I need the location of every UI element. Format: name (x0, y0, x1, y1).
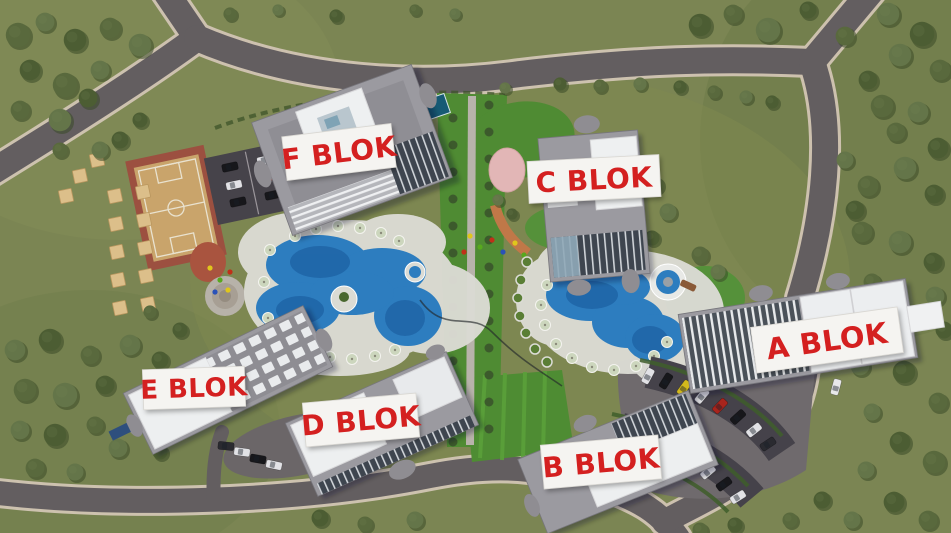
tree-highlight (331, 11, 337, 17)
tree-highlight (861, 73, 870, 82)
promenade-tree (485, 128, 494, 137)
tree-highlight (694, 524, 701, 531)
umbrella-pole (394, 349, 396, 351)
tree-highlight (635, 79, 641, 85)
tree-highlight (47, 427, 58, 438)
tree-highlight (913, 25, 925, 37)
umbrella-pole (666, 341, 668, 343)
play-equipment (227, 269, 232, 274)
umbrella-pole (351, 358, 353, 360)
tree-highlight (926, 454, 937, 465)
tree-highlight (874, 98, 885, 109)
cabana (109, 244, 124, 259)
tree-highlight (926, 255, 935, 264)
flowerbed (542, 357, 552, 367)
promenade-tree (449, 249, 458, 258)
promenade-tree (449, 114, 458, 123)
tree-highlight (741, 92, 747, 98)
tree-highlight (13, 423, 22, 432)
play-equipment (477, 244, 482, 249)
tree-highlight (9, 26, 21, 38)
tree-highlight (274, 6, 279, 11)
umbrella-pole (374, 355, 376, 357)
tree-highlight (928, 289, 937, 298)
cabana (135, 184, 150, 199)
tree-highlight (22, 62, 32, 72)
umbrella-pole (380, 232, 382, 234)
tree-highlight (662, 206, 670, 214)
tree-highlight (712, 266, 719, 273)
car-windshield (222, 443, 228, 449)
tree-highlight (94, 144, 102, 152)
tree-highlight (675, 82, 681, 88)
pink-plaza (489, 148, 525, 192)
tree-highlight (838, 29, 847, 38)
umbrella-pole (591, 366, 593, 368)
tree-highlight (54, 144, 61, 151)
umbrella-pole (546, 284, 548, 286)
flowerbed (516, 275, 526, 285)
umbrella-pole (359, 227, 361, 229)
play-equipment (467, 233, 472, 238)
tree-highlight (816, 494, 824, 502)
tree-highlight (501, 84, 506, 89)
umbrella-pole (635, 365, 637, 367)
tree-highlight (889, 125, 898, 134)
tree-highlight (81, 91, 90, 100)
play-equipment (212, 289, 217, 294)
play-equipment (512, 240, 517, 245)
tree-highlight (848, 203, 857, 212)
tree-highlight (927, 187, 936, 196)
flowerbed (513, 293, 523, 303)
tree-highlight (411, 6, 416, 11)
promenade-tree (485, 344, 494, 353)
tree-highlight (860, 464, 868, 472)
tree-highlight (111, 441, 120, 450)
tree-highlight (134, 114, 141, 121)
promenade-tree (449, 222, 458, 231)
promenade-tree (485, 371, 494, 380)
flowerbed (515, 311, 525, 321)
tree-highlight (759, 21, 771, 33)
cabana (108, 216, 123, 231)
umbrella-pole (555, 343, 557, 345)
tree-highlight (69, 466, 77, 474)
tree-highlight (880, 6, 891, 17)
tree-highlight (930, 140, 940, 150)
tree-highlight (42, 332, 53, 343)
tree-highlight (56, 76, 68, 88)
tree-highlight (726, 7, 735, 16)
flowerbed (521, 328, 531, 338)
tree-highlight (555, 79, 561, 85)
tree-highlight (886, 494, 896, 504)
tree-highlight (784, 514, 791, 521)
tree-highlight (932, 62, 942, 72)
umbrella-pole (263, 281, 265, 283)
tree-highlight (67, 32, 78, 43)
tree-highlight (98, 378, 107, 387)
cabana (112, 300, 127, 315)
block-label-e[interactable]: E BLOK (140, 366, 249, 413)
play-equipment (500, 249, 505, 254)
tree-highlight (122, 337, 132, 347)
umbrella-pole (540, 304, 542, 306)
promenade-tree (449, 141, 458, 150)
tree-highlight (114, 134, 122, 142)
umbrella-pole (571, 357, 573, 359)
block-label-c[interactable]: C BLOK (527, 154, 663, 206)
tree-highlight (692, 17, 703, 28)
play-equipment (225, 287, 230, 292)
tree-highlight (132, 37, 143, 48)
cabana (72, 168, 87, 183)
tree-highlight (494, 196, 499, 201)
tree-highlight (854, 224, 864, 234)
slide-tower (663, 277, 673, 287)
tree-highlight (451, 10, 456, 15)
umbrella-pole (613, 369, 615, 371)
cabana (137, 240, 152, 255)
tree-highlight (892, 234, 903, 245)
flowerbed (530, 344, 540, 354)
tree-highlight (52, 112, 63, 123)
promenade-tree (485, 425, 494, 434)
tree-highlight (921, 513, 930, 522)
tree-highlight (694, 249, 702, 257)
car-windshield (238, 448, 244, 455)
tree-highlight (866, 276, 874, 284)
tree-highlight (145, 307, 151, 313)
cabana (107, 188, 122, 203)
tree-highlight (910, 104, 920, 114)
tree-highlight (729, 519, 736, 526)
label-text-e: E BLOK (140, 372, 249, 406)
play-equipment (217, 277, 222, 282)
tree-highlight (13, 103, 22, 112)
umbrella-pole (544, 324, 546, 326)
cabana (110, 272, 125, 287)
promenade-tree (485, 398, 494, 407)
spa-water (409, 266, 421, 278)
site-plan-render: F BLOK C BLOK A BLOK E BLOK D BLOK B BLO… (0, 0, 951, 533)
cabana (136, 212, 151, 227)
tree-highlight (154, 354, 162, 362)
promenade-tree (485, 101, 494, 110)
entrance-canopy (907, 301, 945, 332)
tree-highlight (839, 154, 847, 162)
tree-highlight (767, 97, 773, 103)
tree-highlight (508, 210, 513, 215)
umbrella-pole (269, 249, 271, 251)
tree-highlight (174, 324, 181, 331)
promenade-path (470, 96, 472, 445)
island-bush (339, 292, 349, 302)
tree-highlight (28, 461, 37, 470)
tree-highlight (860, 178, 870, 188)
tree-highlight (314, 512, 322, 520)
car-windshield (254, 455, 260, 462)
tree-highlight (7, 342, 17, 352)
label-text-c: C BLOK (535, 160, 654, 199)
tree-highlight (595, 81, 601, 87)
tree-highlight (56, 386, 68, 398)
tree-highlight (409, 514, 417, 522)
tree-highlight (89, 419, 97, 427)
promenade-tree (485, 263, 494, 272)
tree-highlight (225, 9, 231, 15)
tree-highlight (709, 87, 715, 93)
car (218, 441, 235, 451)
tree-highlight (38, 15, 47, 24)
umbrella-pole (398, 240, 400, 242)
cabana (138, 268, 153, 283)
tree-highlight (802, 4, 810, 12)
building-c-blok (536, 111, 655, 300)
tree-highlight (897, 160, 908, 171)
play-equipment (489, 237, 494, 242)
play-equipment (207, 265, 212, 270)
tree-highlight (846, 514, 854, 522)
tree-highlight (102, 20, 112, 30)
cabana (58, 188, 73, 203)
tree-highlight (83, 348, 92, 357)
tree-highlight (892, 47, 903, 58)
promenade-tree (449, 195, 458, 204)
umbrella-pole (267, 317, 269, 319)
tree-highlight (17, 382, 28, 393)
play-equipment (461, 249, 466, 254)
tree-highlight (866, 406, 874, 414)
tree-highlight (892, 434, 902, 444)
tree-highlight (931, 395, 940, 404)
flowerbed (522, 257, 532, 267)
tree-highlight (93, 63, 102, 72)
playground-terracotta (190, 242, 226, 282)
tree-highlight (359, 518, 366, 525)
